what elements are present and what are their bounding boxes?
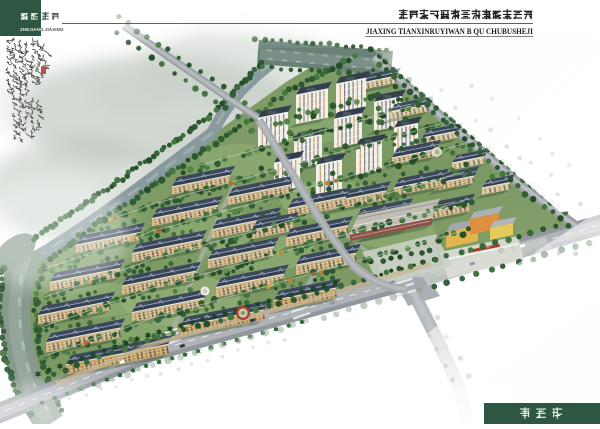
- svg-text:JIAXING TIANXINRUYIWAN B QU CH: JIAXING TIANXINRUYIWAN B QU CHUBUSHEJI: [366, 27, 533, 36]
